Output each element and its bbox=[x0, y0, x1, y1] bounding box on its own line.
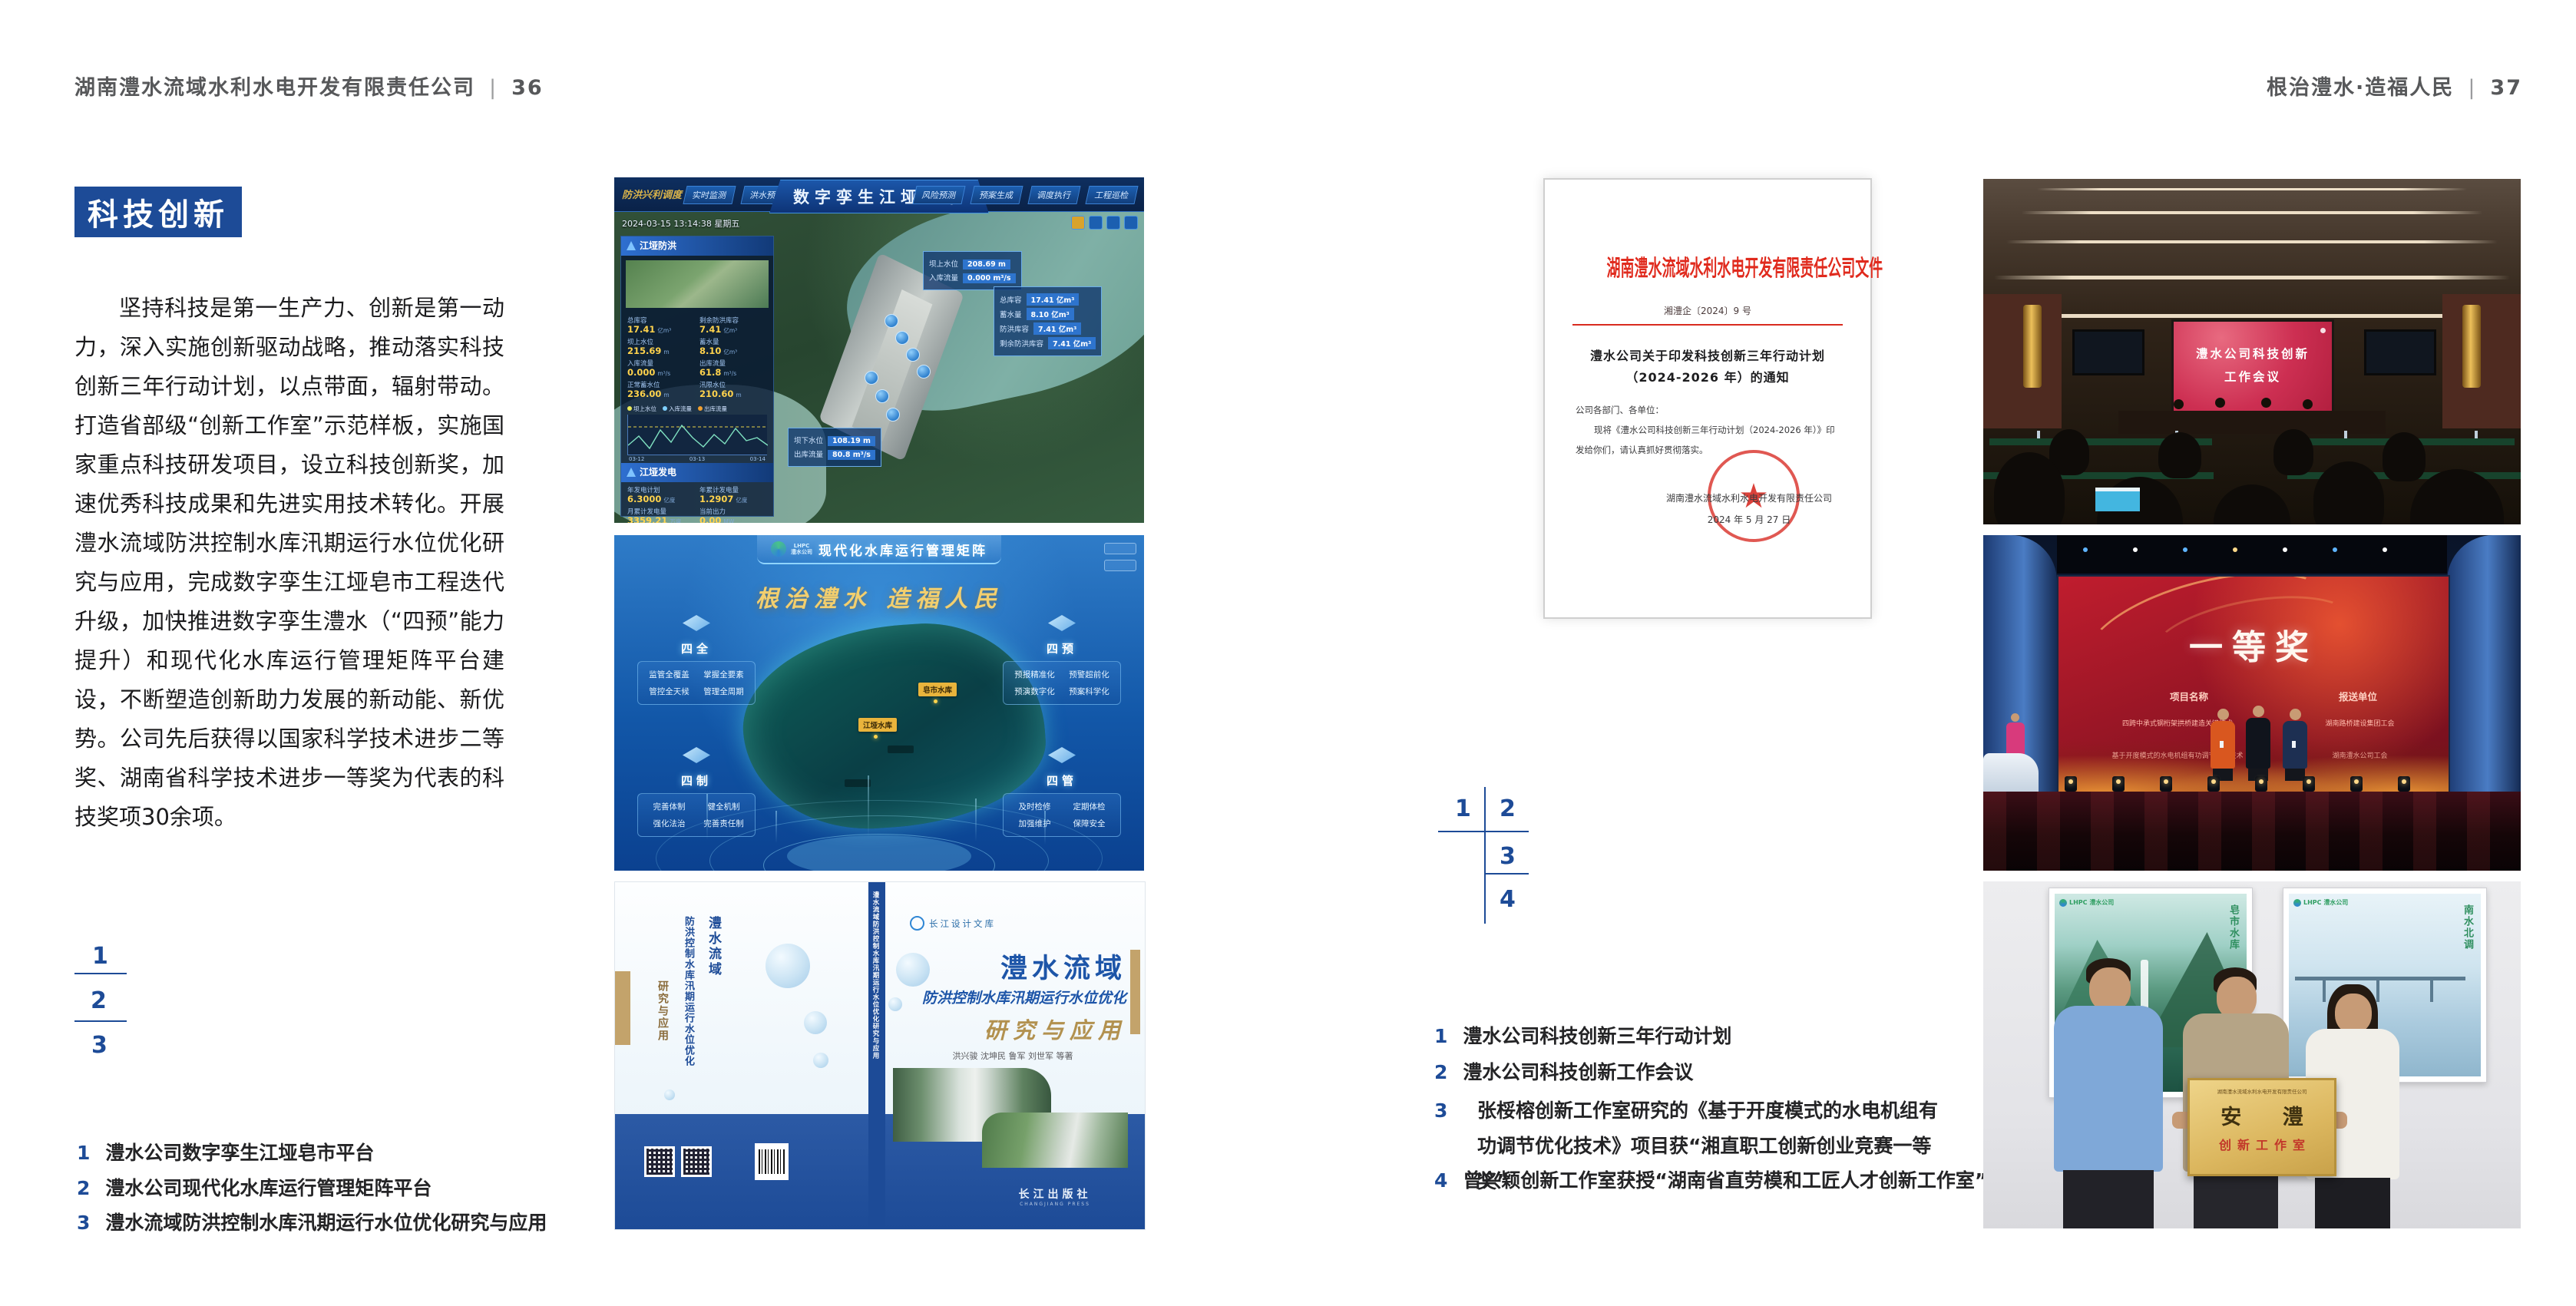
figure-matrix-platform: LHPC澧水公司 现代化水库运行管理矩阵 根治澧水 造福人民 皂市水库 江垭水库… bbox=[614, 535, 1144, 871]
gate-marker bbox=[895, 331, 909, 345]
spotlight bbox=[2283, 547, 2287, 552]
tan-accent-bar bbox=[1130, 950, 1140, 1034]
water-bottle bbox=[2344, 431, 2347, 438]
stat-cell: 当前出力0.00MW bbox=[699, 507, 767, 523]
series-logo-row: 长江设计文库 bbox=[910, 916, 996, 931]
screen-title-line2: 工作会议 bbox=[2174, 368, 2332, 385]
bridge-pier bbox=[2323, 980, 2326, 1002]
tissue-box bbox=[2095, 488, 2140, 511]
qr-code bbox=[644, 1146, 675, 1177]
host-head bbox=[2011, 713, 2019, 722]
ceiling-light bbox=[2006, 240, 2498, 243]
side-wall bbox=[1983, 294, 2062, 428]
tan-accent-block bbox=[615, 971, 630, 1045]
platform-toolbar-icons bbox=[1067, 216, 1138, 233]
light-pillar bbox=[775, 811, 777, 843]
gate-marker bbox=[906, 348, 920, 362]
stage-light bbox=[2350, 776, 2363, 792]
platform-tabs-right: 风险预测 预案生成 调度执行 工程巡检 bbox=[914, 186, 1141, 204]
photo-studio-plaque: LHPC 澧水公司 皂市水库 LHPC 澧水公司 南水北调 bbox=[1983, 881, 2521, 1228]
person-pants bbox=[2194, 1170, 2278, 1228]
left-page-header: 湖南澧水流域水利水电开发有限责任公司|36 bbox=[74, 71, 544, 101]
back-cover-title-3: 研究与应用 bbox=[655, 980, 670, 1042]
audience-silhouette bbox=[2313, 461, 2384, 524]
spotlight bbox=[2383, 547, 2387, 552]
legend-item: 坝上水位 bbox=[627, 405, 656, 413]
photo-award-ceremony: 一等奖 项目名称 报送单位 四跨中承式钢桁架拱桥建造关键技术 湖南路桥建设集团工… bbox=[1983, 535, 2521, 871]
lhpc-logo-icon bbox=[771, 541, 786, 557]
water-droplet bbox=[766, 944, 810, 988]
chart-legend: 坝上水位 入库流量 出库流量 bbox=[621, 403, 773, 415]
stage-light bbox=[2160, 776, 2172, 792]
side-wall bbox=[2442, 294, 2521, 428]
document-date: 2024 年 5 月 27 日 bbox=[1643, 513, 1855, 526]
tab-plan-generate: 预案生成 bbox=[970, 186, 1023, 204]
caption-left-3: 3澧水流域防洪控制水库汛期运行水位优化研究与应用 bbox=[77, 1208, 547, 1235]
caption-right-2: 2澧水公司科技创新工作会议 bbox=[1434, 1057, 1693, 1085]
callout-capacity: 总库容17.41 亿m³ 蓄水量8.10 亿m³ 防洪库容7.41 亿m³ 剩余… bbox=[994, 286, 1102, 356]
front-title-3: 研究与应用 bbox=[984, 1013, 1126, 1045]
flood-stats-grid: 总库容17.41亿m³ 剩余防洪库容7.41亿m³ 坝上水位215.69m 蓄水… bbox=[621, 312, 773, 403]
figure-book-cover: 澧水流域 防洪控制水库汛期运行水位优化 研究与应用 澧水流域防洪控制水库汛期运行… bbox=[614, 881, 1146, 1230]
stat-cell: 蓄水量8.10亿m³ bbox=[699, 337, 767, 357]
caption-number: 2 bbox=[77, 1177, 90, 1199]
section-badge: 科技创新 bbox=[74, 187, 242, 237]
person-pants bbox=[2315, 1178, 2390, 1228]
water-bottle bbox=[2037, 431, 2040, 438]
stat-cell: 坝上水位215.69m bbox=[627, 337, 695, 357]
lhpc-logo-text: LHPC澧水公司 bbox=[791, 543, 812, 555]
page-number-right: 37 bbox=[2490, 76, 2522, 100]
series-logo-icon bbox=[910, 916, 924, 931]
caption-text: 澧水公司数字孪生江垭皂市平台 bbox=[105, 1142, 374, 1164]
legend-dot bbox=[627, 406, 632, 411]
trophy bbox=[2220, 741, 2224, 748]
cover-dam-photo-2 bbox=[982, 1113, 1128, 1168]
wall-lamp bbox=[2462, 305, 2481, 388]
document-salutation: 公司各部门、各单位： bbox=[1576, 404, 1664, 416]
document-title-line1: 澧水公司关于印发科技创新三年行动计划 bbox=[1545, 346, 1870, 364]
light-pillar bbox=[868, 775, 869, 837]
water-level-chart bbox=[627, 415, 767, 455]
dam-thumbnail bbox=[626, 260, 769, 308]
matrix-header: LHPC澧水公司 现代化水库运行管理矩阵 bbox=[757, 535, 1001, 564]
screen-title-line1: 澧水公司科技创新 bbox=[2174, 345, 2332, 362]
award-col-project: 项目名称 bbox=[2105, 689, 2273, 703]
audience-silhouette bbox=[2273, 429, 2313, 475]
locate-icon bbox=[1106, 216, 1120, 230]
group-siyu: 四预 预报精准化预警超前化预演数字化预案科学化 bbox=[1003, 615, 1121, 705]
water-droplet bbox=[664, 1089, 675, 1100]
caption-number: 3 bbox=[77, 1212, 90, 1234]
spotlight bbox=[2133, 547, 2138, 552]
power-panel-title: 江垭发电 bbox=[621, 463, 773, 482]
person-head bbox=[2335, 994, 2372, 1033]
stat-cell: 剩余防洪库容7.41亿m³ bbox=[699, 316, 767, 336]
speaker-silhouette bbox=[2261, 398, 2271, 408]
stat-cell: 年发电计划6.3000亿度 bbox=[627, 485, 695, 505]
monitor-icon bbox=[683, 615, 710, 638]
caption-right-1: 1澧水公司科技创新三年行动计划 bbox=[1434, 1021, 1731, 1049]
person-pants bbox=[2063, 1170, 2154, 1228]
award-org-1: 湖南路桥建设集团工会 bbox=[2289, 718, 2431, 728]
water-bottle bbox=[2475, 431, 2478, 438]
layers-icon bbox=[1089, 216, 1103, 230]
settings-icon bbox=[1124, 216, 1138, 230]
maintenance-icon bbox=[1048, 747, 1076, 770]
gate-marker bbox=[875, 389, 889, 403]
caption-right-4: 4曾兴颖创新工作室获授“湖南省直劳模和工匠人才创新工作室” bbox=[1434, 1165, 1987, 1193]
award-col-org: 报送单位 bbox=[2289, 689, 2427, 703]
bridge-pier bbox=[2430, 980, 2433, 1002]
figure-key-3: 3 bbox=[1500, 843, 1516, 870]
chart-x-ticks: 03-1203-1303-14 bbox=[621, 455, 773, 463]
slogan-text: 根治澧水·造福人民 bbox=[2267, 76, 2454, 100]
figure-key-2: 2 bbox=[1500, 795, 1516, 822]
document-body-line1: 现将《澧水公司科技创新三年行动计划（2024-2026 年）》印 bbox=[1594, 424, 1835, 436]
legend-dot bbox=[663, 406, 667, 411]
publisher-name-en: CHANGJIANG PRESS bbox=[974, 1202, 1136, 1207]
barcode bbox=[755, 1143, 789, 1180]
stage-light bbox=[2303, 776, 2315, 792]
screen-logo-icon bbox=[2320, 328, 2326, 333]
calligraphy-slogan: 根治澧水 造福人民 bbox=[614, 580, 1144, 613]
key-divider bbox=[74, 973, 127, 974]
red-rule bbox=[1572, 324, 1843, 326]
document-title-line2: （2024-2026 年）的通知 bbox=[1545, 367, 1870, 385]
stage-light bbox=[2207, 776, 2220, 792]
map-tag-zaoshi: 皂市水库 bbox=[918, 683, 957, 696]
speaker-silhouette bbox=[2174, 399, 2184, 409]
caption-left-1: 1澧水公司数字孪生江垭皂市平台 bbox=[77, 1138, 374, 1165]
stat-cell: 正常蓄水位236.00m bbox=[627, 380, 695, 400]
group-siquan: 四全 监管全覆盖掌握全要素管控全天候管理全周期 bbox=[637, 615, 756, 705]
document-body-line2: 发给你们，请认真抓好贯彻落实。 bbox=[1576, 444, 1708, 456]
spotlight bbox=[2333, 547, 2337, 552]
platform-timestamp: 2024-03-15 13:14:38 星期五 bbox=[622, 217, 739, 230]
ceiling-light bbox=[2022, 211, 2482, 214]
figure-key-1: 1 bbox=[1455, 795, 1471, 822]
key-divider bbox=[1484, 873, 1529, 875]
map-marker bbox=[874, 735, 878, 739]
stat-cell: 年累计发电量1.2907亿度 bbox=[699, 485, 767, 505]
authors-line: 洪兴骏 沈坤民 鲁军 刘世军 等著 bbox=[899, 1050, 1126, 1062]
platform-corner-label: 防洪兴利调度 bbox=[622, 187, 682, 201]
bridge-deck bbox=[2295, 977, 2465, 980]
spotlight bbox=[2233, 547, 2237, 552]
figure-key-3: 3 bbox=[91, 1032, 107, 1059]
key-divider-vertical bbox=[1484, 787, 1486, 924]
stage-light bbox=[2398, 776, 2410, 792]
innovation-studio-plaque: 湖南澧水流域水利水电开发有限责任公司 安 澧 创新工作室 bbox=[2187, 1078, 2336, 1176]
ceiling-light bbox=[1994, 276, 2510, 279]
tab-risk-forecast: 风险预测 bbox=[912, 186, 965, 204]
document-red-header: 湖南澧水流域水利水电开发有限责任公司文件 bbox=[1607, 250, 1809, 283]
tab-dispatch-execute: 调度执行 bbox=[1027, 186, 1080, 204]
chart-svg bbox=[628, 415, 768, 455]
caption-text: 澧水流域防洪控制水库汛期运行水位优化研究与应用 bbox=[105, 1212, 547, 1234]
stat-cell: 汛限水位210.60m bbox=[699, 380, 767, 400]
figure-official-document: 湖南澧水流域水利水电开发有限责任公司文件 湘澧企〔2024〕9 号 澧水公司关于… bbox=[1543, 178, 1872, 619]
stage-light bbox=[2255, 776, 2267, 792]
legend-item: 入库流量 bbox=[663, 405, 692, 413]
key-divider bbox=[1438, 831, 1529, 832]
publisher-name: 长江出版社 bbox=[974, 1186, 1136, 1202]
gate-marker bbox=[865, 371, 878, 385]
callout-upstream: 坝上水位208.69 m 入库流量0.000 m³/s bbox=[923, 251, 1022, 290]
award-title: 一等奖 bbox=[2058, 620, 2449, 669]
water-droplet bbox=[888, 997, 902, 1011]
qr-code bbox=[681, 1146, 712, 1177]
magazine-spread: 湖南澧水流域水利水电开发有限责任公司|36 根治澧水·造福人民|37 科技创新 … bbox=[0, 0, 2576, 1306]
map-tag-jiangya: 江垭水库 bbox=[858, 718, 897, 732]
spotlight bbox=[2083, 547, 2088, 552]
header-pill bbox=[1104, 543, 1136, 554]
caption-text: 澧水公司现代化水库运行管理矩阵平台 bbox=[105, 1177, 432, 1199]
audience-silhouette bbox=[2158, 432, 2201, 478]
person-blue-polo bbox=[2054, 1006, 2163, 1172]
stat-cell: 月累计发电量3359.21万度 bbox=[627, 507, 695, 523]
figure-key-2: 2 bbox=[91, 987, 107, 1014]
photo-innovation-meeting: 澧水公司科技创新 工作会议 bbox=[1983, 179, 2521, 524]
water-droplet bbox=[804, 1011, 827, 1034]
poster-caption: 皂市水库 bbox=[2226, 904, 2240, 951]
bridge-pier bbox=[2376, 980, 2379, 1002]
gate-marker bbox=[886, 408, 900, 422]
map-marker bbox=[934, 699, 937, 703]
wall-tv bbox=[2072, 329, 2144, 375]
speaker-silhouette bbox=[2303, 399, 2313, 409]
key-divider bbox=[74, 1020, 127, 1022]
spine-title: 澧水流域防洪控制水库汛期运行水位优化研究与应用 bbox=[871, 891, 880, 1060]
gate-marker bbox=[885, 314, 898, 328]
legend-dot bbox=[698, 406, 703, 411]
stage-light bbox=[2112, 776, 2125, 792]
stage-light bbox=[2065, 776, 2077, 792]
light-pillar bbox=[975, 798, 977, 841]
publisher-block: 长江出版社 CHANGJIANG PRESS bbox=[974, 1186, 1136, 1207]
wall-lamp bbox=[2023, 305, 2042, 388]
tab-realtime-monitor: 实时监测 bbox=[683, 186, 736, 204]
forecast-icon bbox=[1048, 615, 1076, 638]
figure-key-4: 4 bbox=[1500, 886, 1516, 913]
page-number-left: 36 bbox=[511, 76, 544, 100]
institution-icon bbox=[683, 747, 710, 770]
front-title-2: 防洪控制水库汛期运行水位优化 bbox=[922, 987, 1126, 1007]
light-pillar bbox=[1044, 811, 1046, 845]
light-pillar bbox=[706, 794, 708, 840]
company-name: 湖南澧水流域水利水电开发有限责任公司 bbox=[74, 76, 475, 100]
series-name: 长江设计文库 bbox=[929, 918, 996, 930]
wall-tv bbox=[2364, 329, 2436, 375]
plaque-title: 安 澧 bbox=[2190, 1100, 2334, 1130]
water-droplet bbox=[813, 1053, 828, 1068]
document-signature: 湖南澧水流域水利水电开发有限责任公司 bbox=[1643, 491, 1855, 504]
spotlight bbox=[2183, 547, 2187, 552]
flood-panel-title: 江垭防洪 bbox=[621, 236, 773, 256]
stat-cell: 出库流量61.8m³/s bbox=[699, 359, 767, 379]
caption-left-2: 2澧水公司现代化水库运行管理矩阵平台 bbox=[77, 1173, 432, 1201]
caption-number: 1 bbox=[77, 1142, 90, 1164]
poster-logo: LHPC 澧水公司 bbox=[2059, 898, 2114, 907]
trophy bbox=[2292, 741, 2296, 748]
book-spine: 澧水流域防洪控制水库汛期运行水位优化研究与应用 bbox=[868, 882, 885, 1229]
poster-logo: LHPC 澧水公司 bbox=[2293, 898, 2348, 907]
map-minor-label bbox=[845, 779, 871, 787]
ceiling-light bbox=[1985, 314, 2519, 318]
header-separator: | bbox=[489, 76, 498, 100]
ceiling-light bbox=[2037, 188, 2467, 190]
figure-digital-twin-platform: 防洪兴利调度 实时监测 洪水预报 防洪预警 数字孪生江垭皂市 风险预测 预案生成… bbox=[614, 177, 1144, 523]
callout-downstream: 坝下水位108.19 m 出库流量80.8 m³/s bbox=[788, 428, 881, 467]
matrix-title: 现代化水库运行管理矩阵 bbox=[818, 540, 987, 559]
back-cover-title-1: 澧水流域 bbox=[704, 916, 723, 977]
header-separator: | bbox=[2468, 76, 2476, 100]
gate-marker bbox=[917, 365, 931, 379]
stat-cell: 入库流量0.000m³/s bbox=[627, 359, 695, 379]
stat-cell: 总库容17.41亿m³ bbox=[627, 316, 695, 336]
audience-silhouette bbox=[2383, 432, 2426, 481]
document-number: 湘澧企〔2024〕9 号 bbox=[1545, 304, 1870, 317]
plaque-org-line: 湖南澧水流域水利水电开发有限责任公司 bbox=[2190, 1087, 2334, 1095]
map-minor-label bbox=[888, 746, 914, 753]
water-droplet bbox=[896, 953, 930, 987]
legend-item: 出库流量 bbox=[698, 405, 727, 413]
user-icon bbox=[1071, 216, 1085, 230]
speaker-silhouette bbox=[2215, 398, 2225, 408]
presenter-suit bbox=[2246, 706, 2270, 781]
plaque-subtitle: 创新工作室 bbox=[2190, 1135, 2334, 1153]
ceiling-truss bbox=[2057, 535, 2447, 574]
body-paragraph: 坚持科技是第一生产力、创新是第一动力，深入实施创新驱动战略，推动落实科技创新三年… bbox=[74, 289, 504, 837]
power-stats-grid: 年发电计划6.3000亿度 年累计发电量1.2907亿度 月累计发电量3359.… bbox=[621, 482, 773, 523]
header-pill bbox=[1104, 560, 1136, 571]
figure-key-1: 1 bbox=[92, 943, 108, 970]
audience-silhouette bbox=[2214, 484, 2290, 524]
back-cover-title-2: 防洪控制水库汛期运行水位优化 bbox=[681, 916, 696, 1108]
poster-caption: 南水北调 bbox=[2460, 904, 2475, 951]
front-title-1: 澧水流域 bbox=[1000, 947, 1126, 986]
flood-panel: 江垭防洪 总库容17.41亿m³ 剩余防洪库容7.41亿m³ 坝上水位215.6… bbox=[620, 236, 774, 517]
stage-floor bbox=[1983, 792, 2521, 871]
tab-project-inspect: 工程巡检 bbox=[1085, 186, 1138, 204]
right-page-header: 根治澧水·造福人民|37 bbox=[2267, 71, 2522, 101]
